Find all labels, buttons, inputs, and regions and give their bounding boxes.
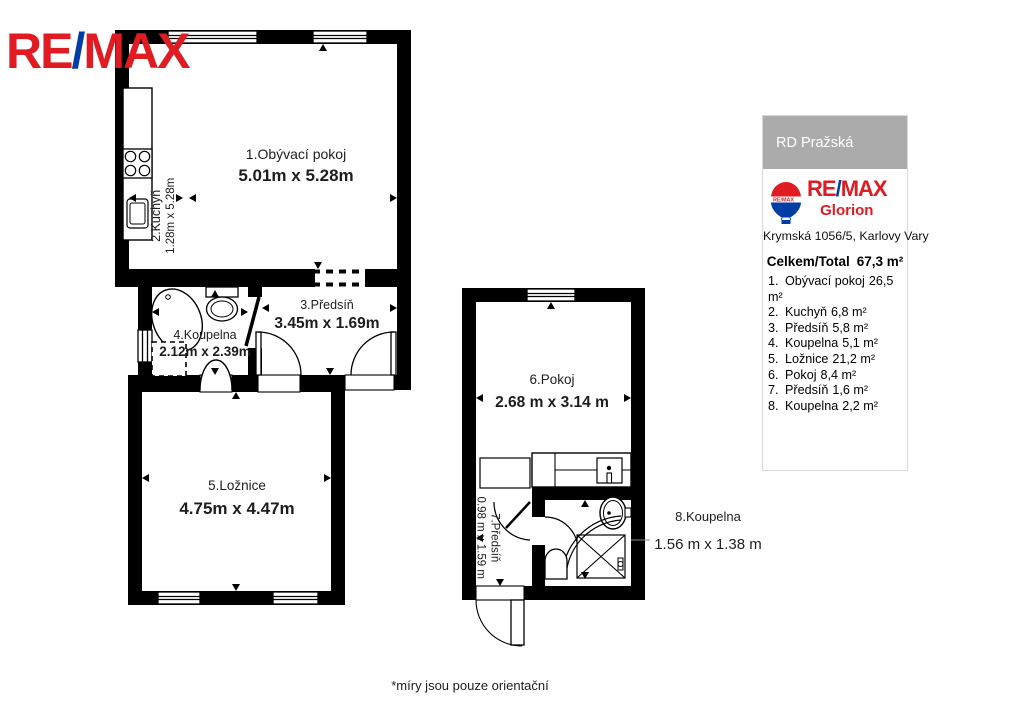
list-item: 4.Koupelna5,1 m²	[768, 336, 907, 352]
logo-slash: /	[71, 23, 83, 79]
room-label-4-koupelna: 4.Koupelna 2.12m x 2.39m	[145, 328, 265, 359]
property-title: RD Pražská	[776, 135, 853, 151]
room-name: 6.Pokoj	[462, 372, 642, 388]
logo-max: MAX	[83, 23, 188, 79]
total-label: Celkem/Total	[767, 254, 850, 269]
closet-icon	[480, 458, 530, 488]
svg-text:RE/MAX: RE/MAX	[773, 198, 794, 204]
remax-balloon-icon: RE/MAX	[769, 178, 803, 224]
info-panel: RD Pražská RE/MAX RE/MAX Glorion Krymská…	[762, 115, 908, 471]
total-value: 67,3 m²	[857, 254, 904, 269]
room-label-3-predsin: 3.Předsíň 3.45m x 1.69m	[247, 298, 407, 333]
logo-re: RE	[6, 23, 71, 79]
list-item: 8.Koupelna2,2 m²	[768, 399, 907, 415]
list-item: 3.Předsíň5,8 m²	[768, 321, 907, 337]
room-dims: 1.56 m x 1.38 m	[628, 536, 788, 553]
brand-office-name: Glorion	[807, 202, 887, 219]
room-label-2-kuchyn: 2.Kuchyň 1.28m x 5.28m	[149, 156, 179, 276]
total-area-row: Celkem/Total67,3 m²	[763, 254, 907, 269]
room-label-1-obyvaci-pokoj: 1.Obývací pokoj 5.01m x 5.28m	[196, 146, 396, 186]
dashed-opening	[313, 269, 367, 287]
room-name: 3.Předsíň	[247, 298, 407, 312]
room-name: 1.Obývací pokoj	[196, 146, 396, 162]
list-item: 6.Pokoj8,4 m²	[768, 368, 907, 384]
room-label-7-predsin: 7.Předsíň 0.98 m x 1.59 m	[473, 488, 500, 588]
room-dims: 0.98 m x 1.59 m	[473, 488, 486, 588]
room-dims: 4.75m x 4.47m	[137, 499, 337, 519]
list-item: 5.Ložnice21,2 m²	[768, 352, 907, 368]
room-label-5-loznice: 5.Ložnice 4.75m x 4.47m	[137, 478, 337, 519]
brand-max: MAX	[841, 176, 887, 201]
kitchen-fixtures	[123, 88, 152, 240]
list-item: 2.Kuchyň6,8 m²	[768, 305, 907, 321]
panel-header: RD Pražská	[763, 116, 907, 169]
bathroom8-fixtures	[545, 497, 631, 579]
room-name: 2.Kuchyň	[149, 156, 163, 276]
room-area-list: 1.Obývací pokoj26,5 m² 2.Kuchyň6,8 m² 3.…	[763, 274, 907, 414]
room-name: 5.Ložnice	[137, 478, 337, 494]
panel-brand: RE/MAX RE/MAX Glorion	[763, 169, 907, 224]
room-dims: 2.12m x 2.39m	[145, 344, 265, 359]
room-dims: 5.01m x 5.28m	[196, 166, 396, 186]
room-name: 7.Předsíň	[488, 488, 501, 588]
room-name: 8.Koupelna	[628, 510, 788, 525]
disclaimer-note: *míry jsou pouze orientační	[380, 678, 560, 693]
room6-fixtures	[480, 453, 631, 488]
brand-wordmark: RE/MAX	[807, 178, 887, 200]
room-label-6-pokoj: 6.Pokoj 2.68 m x 3.14 m	[462, 372, 642, 412]
list-item: 1.Obývací pokoj26,5 m²	[768, 274, 907, 305]
brand-re: RE	[807, 176, 836, 201]
toilet-tank	[206, 287, 238, 297]
floorplan-page: RE/MAX 1.Obývací pokoj 5.01m x 5.28m 2.K…	[0, 0, 1024, 724]
property-address: Krymská 1056/5, Karlovy Vary	[763, 229, 907, 243]
room-dims: 2.68 m x 3.14 m	[462, 394, 642, 412]
toilet-icon-2	[545, 549, 567, 579]
room-dims: 1.28m x 5.28m	[166, 156, 179, 276]
room-name: 4.Koupelna	[145, 328, 265, 342]
room-dims: 3.45m x 1.69m	[247, 315, 407, 333]
room-label-8-koupelna: 8.Koupelna 1.56 m x 1.38 m	[628, 510, 788, 553]
remax-wordmark: RE/MAX	[6, 26, 188, 76]
list-item: 7.Předsíň1,6 m²	[768, 383, 907, 399]
